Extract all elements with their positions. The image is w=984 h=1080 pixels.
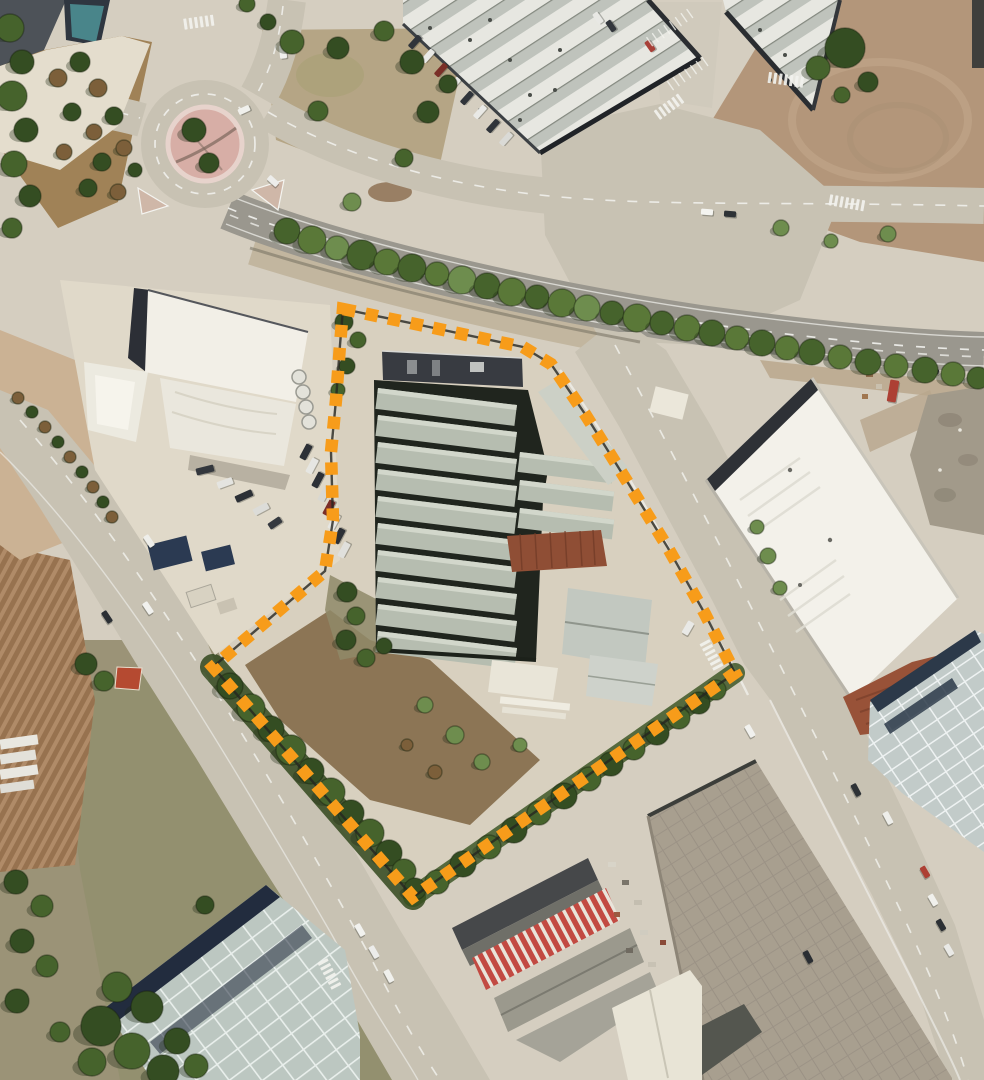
aerial-photo (0, 0, 984, 1080)
building-edge-sliver (972, 0, 984, 68)
red-shed (115, 667, 142, 690)
aerial-photo-svg (0, 0, 984, 1080)
